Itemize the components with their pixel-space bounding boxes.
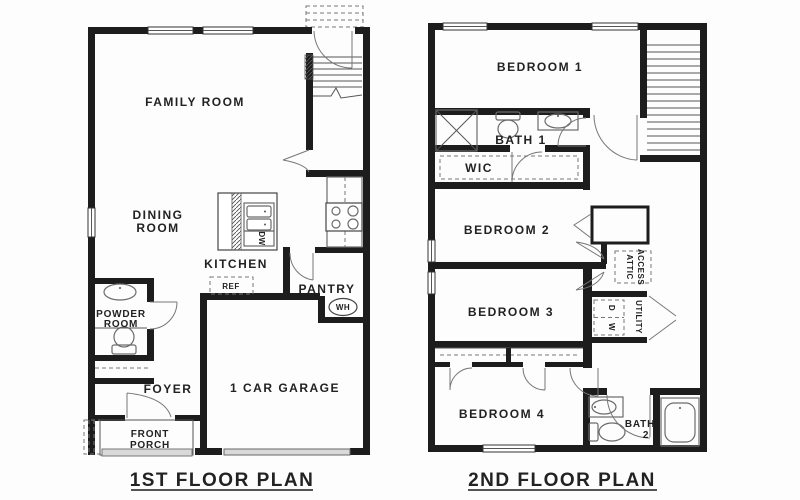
dining-room-label-2: ROOM xyxy=(136,221,179,235)
foyer-label: FOYER xyxy=(144,382,193,396)
bedroom1-label: BEDROOM 1 xyxy=(497,60,583,74)
second-floor-windows xyxy=(428,23,638,452)
dryer-label: D xyxy=(607,305,616,311)
dining-room-label-1: DINING xyxy=(133,208,184,222)
ref-label: REF xyxy=(222,282,240,291)
attic-access-label-2: ACCESS xyxy=(636,249,645,286)
wic-shelves xyxy=(440,156,578,179)
second-floor-plan: BEDROOM 1 BATH 1 WIC BEDROOM 2 BEDROOM 3… xyxy=(428,23,707,491)
bedroom2-label: BEDROOM 2 xyxy=(464,223,550,237)
first-floor-plan: FAMILY ROOM DINING ROOM KITCHEN REF PANT… xyxy=(84,6,370,491)
bath2-sink xyxy=(589,397,623,417)
shower xyxy=(436,110,477,151)
front-porch-label-2: PORCH xyxy=(130,440,170,451)
bedroom4-closets xyxy=(435,348,583,364)
bedroom3-label: BEDROOM 3 xyxy=(468,305,554,319)
kitchen-island xyxy=(218,193,277,250)
garage-label: 1 CAR GARAGE xyxy=(230,381,340,395)
bath2-label-1: BATH xyxy=(625,419,655,430)
powder-toilet xyxy=(112,327,136,354)
bedroom4-label: BEDROOM 4 xyxy=(459,407,545,421)
first-floor-stairs xyxy=(305,55,362,98)
kitchen-label: KITCHEN xyxy=(204,257,268,271)
bath2-label-2: 2 xyxy=(643,430,649,441)
floor-plan-drawing: FAMILY ROOM DINING ROOM KITCHEN REF PANT… xyxy=(0,0,800,500)
washer-label: W xyxy=(607,323,616,331)
front-porch-label-1: FRONT xyxy=(131,429,169,440)
pantry-label: PANTRY xyxy=(299,282,356,296)
back-stoop xyxy=(306,6,363,27)
wic-label: WIC xyxy=(465,161,493,175)
bathtub xyxy=(661,398,699,446)
wh-label: WH xyxy=(336,303,350,312)
powder-sink xyxy=(104,284,136,300)
utility-label: UTILITY xyxy=(634,300,643,334)
family-room-label: FAMILY ROOM xyxy=(145,95,245,109)
garage-door xyxy=(224,449,350,455)
bedroom2-closet xyxy=(574,207,648,243)
stove xyxy=(326,203,362,231)
second-floor-title: 2ND FLOOR PLAN xyxy=(468,470,656,491)
bath1-label: BATH 1 xyxy=(495,133,546,147)
powder-room-label-2: ROOM xyxy=(104,319,138,330)
first-floor-title: 1ST FLOOR PLAN xyxy=(130,470,315,491)
dw-label: DW xyxy=(257,231,266,245)
floor-plan-image: FAMILY ROOM DINING ROOM KITCHEN REF PANT… xyxy=(0,0,800,500)
second-floor-stairs xyxy=(647,45,700,150)
attic-access-label-1: ATTIC xyxy=(625,254,634,279)
